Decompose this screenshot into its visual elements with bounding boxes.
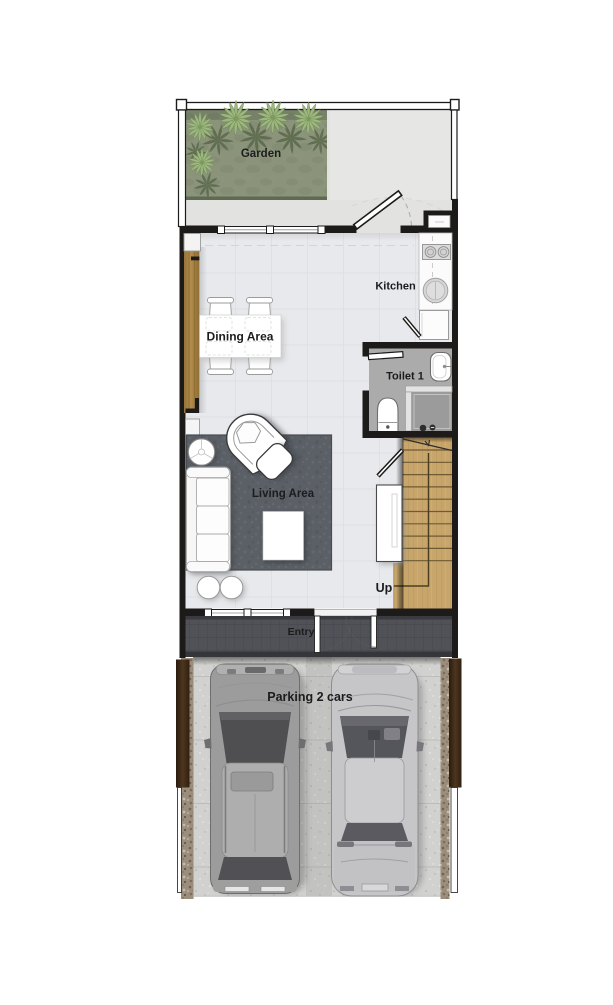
svg-text:Living Area: Living Area (252, 488, 315, 500)
svg-text:Toilet 1: Toilet 1 (386, 371, 424, 383)
svg-text:Parking 2 cars: Parking 2 cars (267, 690, 353, 704)
svg-text:Entry: Entry (288, 626, 315, 638)
svg-text:Dining Area: Dining Area (207, 330, 274, 344)
svg-text:Garden: Garden (241, 148, 281, 160)
svg-text:Kitchen: Kitchen (375, 281, 416, 293)
svg-text:Up: Up (376, 581, 393, 595)
